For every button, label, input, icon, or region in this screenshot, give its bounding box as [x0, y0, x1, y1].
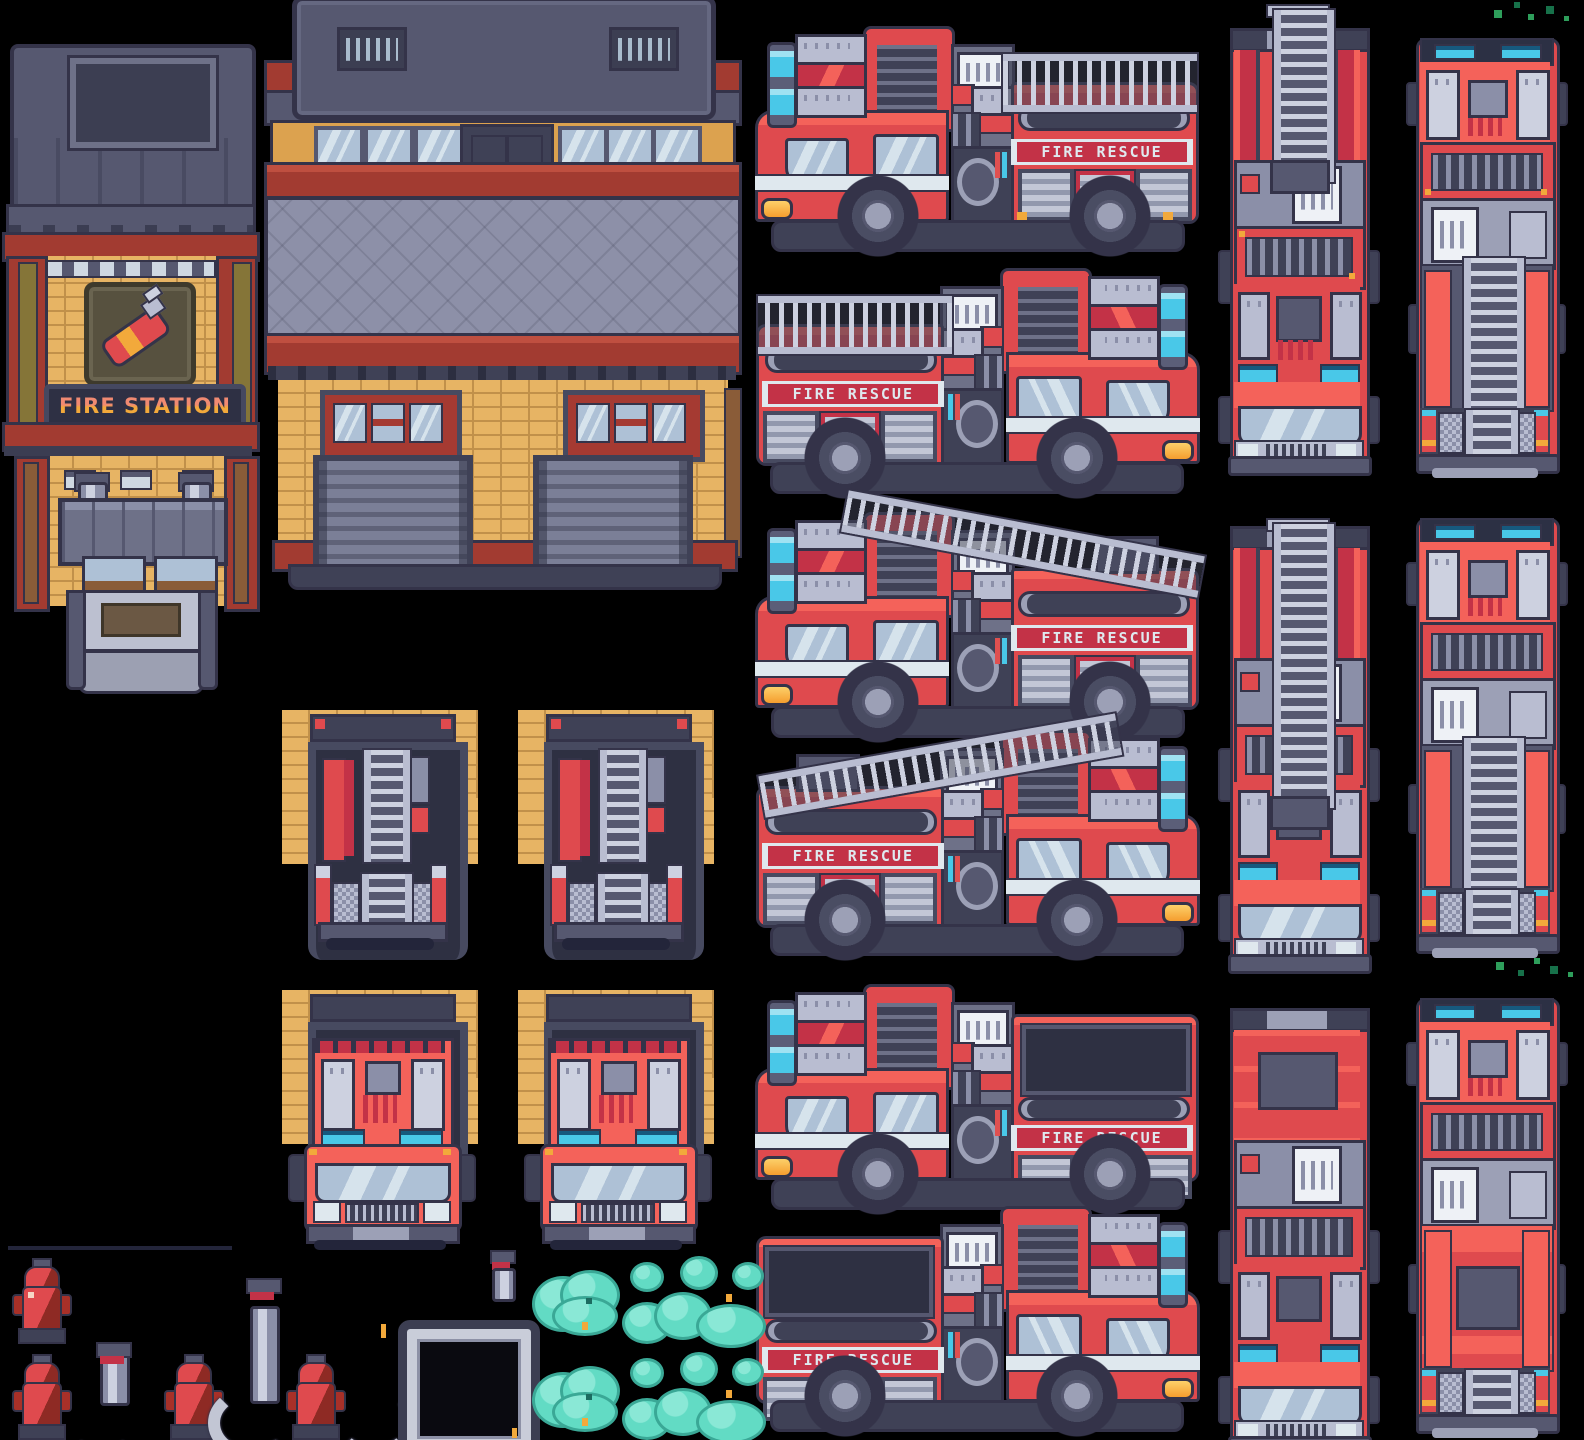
aerial-ladder-top: [1274, 524, 1334, 808]
pump-controls: [948, 856, 960, 882]
vent-slats: [1431, 633, 1543, 671]
speck: [1514, 2, 1520, 8]
speck: [1496, 962, 1504, 970]
roof-ribs: [363, 1095, 397, 1123]
rear-wheel: [803, 1354, 887, 1438]
main-roof: [264, 196, 742, 344]
pump-tool: [942, 356, 976, 376]
crew-section: [1234, 1264, 1360, 1348]
splash-dot: [586, 1394, 592, 1400]
ladder-bed: [1420, 264, 1554, 412]
amber-tick: [582, 1322, 588, 1330]
window-pane: [333, 403, 367, 443]
cab-roof: [1420, 1022, 1550, 1102]
rear-light-column: [1534, 410, 1548, 452]
hose-coil: [957, 644, 999, 692]
outrigger-right: [1522, 1230, 1550, 1368]
corner-dot: [1541, 189, 1547, 195]
fire-station-garage-building: [264, 0, 742, 592]
pump-tool: [942, 818, 976, 838]
stowed-ladder: [1003, 54, 1197, 112]
doorway-lintel: [546, 994, 692, 1022]
grille: [581, 1203, 655, 1223]
splash-blob: [552, 1392, 618, 1432]
cab-roof-emerging: [548, 1038, 690, 1154]
splash-blob: [680, 1256, 718, 1290]
roof-notch-bar: [315, 1041, 445, 1053]
fire-extinguisher-icon: [94, 296, 176, 370]
amber-tick: [726, 1390, 732, 1398]
cab-equipment-box: [1088, 1266, 1160, 1298]
pump-tool: [979, 1072, 1013, 1092]
cab-equipment-box: [1088, 328, 1160, 360]
lintel-peg: [441, 719, 451, 729]
platform-beacon: [1240, 174, 1260, 194]
stowed-ladder: [758, 296, 952, 354]
fire-hydrant: [12, 1258, 68, 1342]
rear-ladder: [600, 750, 646, 862]
hose-coil: [956, 400, 998, 448]
crew-hatch: [1276, 296, 1322, 342]
hose-coil: [956, 862, 998, 910]
splash-blob: [680, 1352, 718, 1386]
lightbar-glass: [1434, 44, 1476, 60]
rear-wheel: [803, 416, 887, 500]
window-pane: [409, 403, 443, 443]
hose-reel-bar: [1018, 591, 1190, 617]
vent-compartment: [1234, 1206, 1366, 1270]
rear-step-ladder: [362, 874, 412, 924]
plain-rear-deck: [1420, 1224, 1554, 1372]
pump-controls: [948, 1332, 960, 1358]
truck-top-plain-facing-up: [1406, 994, 1564, 1440]
speck: [1494, 10, 1502, 18]
grille: [1266, 444, 1328, 456]
roof-panel: [411, 1059, 445, 1131]
lintel-peg: [315, 719, 325, 729]
crew-ribs: [1278, 340, 1314, 360]
livery-text: FIRE RESCUE: [1041, 629, 1162, 647]
cab-band: [1234, 1362, 1360, 1388]
rear-column-left: [322, 758, 346, 862]
corner-dot: [545, 1149, 553, 1155]
cab-equipment-box: [1088, 790, 1160, 822]
deck-hatch-panel: [1456, 1266, 1520, 1330]
tower-dentils: [46, 260, 216, 278]
water-splash-cluster: [622, 1388, 762, 1438]
grille: [345, 1203, 419, 1223]
headlight-left: [313, 1201, 341, 1223]
lightbar-glass: [1434, 524, 1476, 540]
rear-light-column: [666, 864, 684, 926]
headlight-left: [1238, 444, 1258, 456]
lintel-peg: [677, 719, 687, 729]
rear-step-ladder: [1466, 890, 1518, 934]
deck-hatch-panel: [1258, 1052, 1338, 1110]
doorway-brick-left: [282, 1078, 308, 1144]
ladder-truck-side-right: FIRE RESCUE: [755, 268, 1200, 498]
headlight: [1162, 1378, 1194, 1400]
crew-door-panel: [1330, 1272, 1362, 1340]
platform-panel: [1509, 211, 1547, 259]
ladder-bed: [1420, 744, 1554, 892]
headlight: [1162, 440, 1194, 462]
floor-shadow: [314, 1240, 446, 1250]
hose-standpipe-tall: [250, 1306, 280, 1404]
cab-lightbar: [767, 1000, 797, 1086]
doorway-truck-front: [518, 986, 714, 1252]
truck-top-plain-facing-down: [1218, 990, 1376, 1440]
vent-slats: [1245, 1217, 1353, 1257]
rear-light-column: [1534, 890, 1548, 932]
ladder-truck-top-extended-facing-down: [1218, 10, 1376, 476]
nozzle-band: [250, 1292, 274, 1300]
hydrant-highlight: [28, 1292, 34, 1298]
roof-panel: [1516, 70, 1550, 140]
front-wheel: [1035, 1354, 1119, 1438]
roof-panel: [1516, 550, 1550, 620]
pump-controls: [995, 1110, 1007, 1136]
crew-door-panel: [1330, 790, 1362, 858]
headlight: [761, 1156, 793, 1178]
rear-column-thin: [580, 760, 590, 856]
roof-hatch: [1468, 560, 1508, 598]
platform-panel: [1509, 691, 1547, 739]
lightbar-glass: [1500, 524, 1542, 540]
truck-side-left-open-bed: FIRE RESCUE: [755, 984, 1200, 1214]
crew-door-panel: [1238, 790, 1270, 858]
cab-lightbar: [767, 42, 797, 128]
rear-light-column: [1534, 1370, 1548, 1412]
hose-nozzle: [490, 1250, 516, 1300]
compartment-shutter: [1018, 655, 1074, 707]
splash-blob: [696, 1400, 766, 1440]
headlight-right: [1336, 942, 1356, 954]
cab-band: [1234, 382, 1360, 408]
lower-post-left: [23, 462, 39, 604]
rear-step-ladder: [1466, 410, 1518, 454]
vent-slats: [1431, 1113, 1543, 1151]
pump-hose-slots: [951, 112, 981, 148]
lower-post-right: [233, 462, 249, 604]
rear-light-column: [550, 864, 568, 926]
pump-tool: [979, 114, 1013, 134]
aerial-ladder-top: [1464, 258, 1524, 416]
vent-slats: [1245, 237, 1353, 277]
platform-panel: [1509, 1171, 1547, 1219]
roof-panel: [1426, 70, 1460, 140]
hose-coil: [957, 158, 999, 206]
water-splash-trio: [630, 1256, 760, 1288]
window-pane: [652, 403, 686, 443]
rear-ladder: [364, 750, 410, 862]
cab-front-emerging: [304, 1144, 462, 1232]
ladder-truck-top-extended-facing-up: [1406, 34, 1564, 482]
splash-blob: [732, 1358, 764, 1386]
rear-step-section: [1420, 888, 1550, 938]
doorway-truck-rear: [518, 706, 714, 958]
compartment-shutter: [881, 411, 937, 463]
headlight: [1162, 902, 1194, 924]
lightbar-glass: [1500, 44, 1542, 60]
fire-station-tower: FIRE STATION: [6, 42, 262, 694]
roof-panel: [647, 1059, 681, 1131]
vent-compartment: [1234, 226, 1366, 290]
windshield-top: [551, 1163, 687, 1203]
plain-deck: [1234, 1030, 1360, 1140]
livery-stripe: FIRE RESCUE: [762, 381, 944, 407]
aerial-ladder-top: [1464, 738, 1524, 896]
floor-shadow: [562, 938, 670, 950]
pump-controls: [995, 638, 1007, 664]
corner-dot: [1425, 189, 1431, 195]
rear-step-section: [1420, 408, 1550, 458]
crew-door-panel: [1330, 292, 1362, 360]
cab-roof-emerging: [312, 1038, 454, 1154]
garage-window: [563, 390, 705, 462]
outrigger-left: [1424, 270, 1452, 408]
roof-panel: [1516, 1030, 1550, 1100]
tower-post-left: [18, 262, 38, 426]
front-wheel: [1035, 878, 1119, 962]
hydrant-base: [18, 1328, 66, 1344]
water-splash-big: [532, 1270, 618, 1334]
vent-compartment: [1420, 622, 1556, 684]
water-splash-cluster: [622, 1292, 762, 1342]
crew-section: [1234, 284, 1360, 368]
cab-roof: [1420, 62, 1550, 142]
cab-equipment-box: [795, 1044, 867, 1076]
pump-module: [942, 1206, 1006, 1402]
checker-plate: [332, 882, 360, 924]
pump-hose-slots: [951, 1070, 981, 1106]
ladder-truck-side-left: FIRE RESCUE: [755, 26, 1200, 256]
rear-light-column: [1422, 410, 1436, 452]
front-bumper: [1228, 954, 1372, 974]
doorway-brick-left: [518, 1078, 544, 1144]
walkway-rail-left: [66, 590, 86, 690]
window-pane: [576, 403, 610, 443]
splash-dot: [586, 1298, 592, 1304]
truck-side-right-open-bed: FIRE RESCUE: [755, 1206, 1200, 1436]
cab-equipment-box: [795, 572, 867, 604]
livery-stripe: FIRE RESCUE: [762, 843, 944, 869]
headlight-right: [1336, 1424, 1356, 1436]
livery-text: FIRE RESCUE: [1041, 143, 1162, 161]
garage-roller-door: [313, 455, 473, 579]
door-mat: [101, 603, 181, 637]
speck: [1550, 966, 1558, 974]
lightbar-glass: [1434, 1004, 1476, 1020]
outrigger-left: [1424, 1230, 1452, 1368]
headlight-left: [1238, 1424, 1258, 1436]
hose-coil: [956, 1338, 998, 1386]
outrigger-right: [1522, 270, 1550, 408]
pump-controls: [948, 394, 960, 420]
vent-compartment: [1420, 142, 1556, 204]
headlight-right: [1336, 444, 1356, 456]
pump-hose-slots: [974, 354, 1004, 390]
headlight-right: [423, 1201, 451, 1223]
vent-slats: [1431, 153, 1543, 191]
splash-blob: [630, 1262, 664, 1292]
garage-window: [320, 390, 462, 462]
hose-frame: [398, 1320, 540, 1440]
crew-hatch: [1276, 1276, 1322, 1322]
window-pane: [614, 403, 648, 443]
emblem-plaque: [84, 282, 196, 386]
rear-step-ladder: [598, 874, 648, 924]
doorway-brick-left: [518, 798, 544, 864]
floor-shadow: [326, 938, 434, 950]
outrigger-right: [1522, 750, 1550, 888]
splash-blob: [552, 1296, 618, 1336]
roof-panel: [1426, 1030, 1460, 1100]
platform-louver-box: [1292, 1146, 1342, 1204]
pump-tool: [942, 1294, 976, 1314]
amber-tick: [512, 1428, 517, 1438]
walkway-rail-right: [198, 590, 218, 690]
rear-column-left: [558, 758, 582, 862]
doorway-lintel: [310, 714, 456, 742]
roof-panel: [557, 1059, 591, 1131]
headlight-right: [659, 1201, 687, 1223]
outrigger-left: [1424, 750, 1452, 888]
grille: [1266, 1424, 1328, 1436]
splash-blob: [696, 1304, 766, 1348]
crew-door-panel: [1238, 1272, 1270, 1340]
rear-wheel: [1068, 1132, 1152, 1216]
roof-monitor: [292, 0, 716, 120]
grass-specks: [1494, 2, 1578, 28]
front-bumper: [1228, 1436, 1372, 1440]
doorway-truck-front: [282, 986, 478, 1252]
station-sign-text: FIRE STATION: [49, 389, 241, 423]
crew-door-panel: [1238, 292, 1270, 360]
cab-lightbar: [1158, 746, 1188, 832]
splash-blob: [630, 1358, 664, 1388]
roof-ribs: [1468, 1078, 1502, 1096]
livery-text: FIRE RESCUE: [792, 385, 913, 403]
checker-plate: [1438, 1372, 1464, 1414]
corner-dot: [309, 1149, 317, 1155]
speck: [1546, 6, 1554, 14]
floor-shadow: [550, 1240, 682, 1250]
doorway-lintel: [310, 994, 456, 1022]
rear-light-column: [1422, 890, 1436, 932]
platform-louver-box: [1431, 687, 1479, 743]
lintel-peg: [551, 719, 561, 729]
roof-panel: [1426, 550, 1460, 620]
ladder-pedestal: [1270, 796, 1330, 830]
amber-tick: [582, 1418, 588, 1426]
corner-dot: [1239, 231, 1245, 237]
wall-post-right: [724, 388, 742, 558]
roof-hatch: [601, 1061, 637, 1095]
splash-blob: [732, 1262, 764, 1290]
hose-coil: [957, 1116, 999, 1164]
checker-plate: [1438, 412, 1464, 454]
cab-lightbar: [767, 528, 797, 614]
corner-dot: [443, 1149, 451, 1155]
headlight: [761, 198, 793, 220]
roof-vent-grille: [609, 27, 679, 71]
separator-line: [8, 1246, 232, 1250]
ground-shadow: [1432, 1428, 1538, 1438]
entrance-walkway: [78, 590, 204, 694]
rear-bumper: [1230, 1008, 1370, 1032]
roof-panel: [321, 1059, 355, 1131]
extinguisher-body: [99, 305, 173, 370]
doorway-lintel: [546, 714, 692, 742]
rear-wheel: [1068, 174, 1152, 258]
roof-ribs: [1468, 598, 1502, 616]
cab-front-emerging: [540, 1144, 698, 1232]
hose-reel-bar: [1018, 1097, 1190, 1121]
checker-plate: [568, 882, 596, 924]
window-pane: [371, 403, 405, 443]
rear-column-thin: [344, 760, 354, 856]
garage-roller-door: [533, 455, 693, 579]
water-splash-big: [532, 1366, 618, 1430]
corner-dot: [1349, 273, 1355, 279]
pump-tool: [979, 600, 1013, 620]
sprite-sheet: FIRE STATION: [0, 0, 1584, 1440]
doorway-brick-left: [282, 798, 308, 864]
cab-roof: [1420, 542, 1550, 622]
cab-lightbar: [1158, 284, 1188, 370]
rear-step-ladder: [1466, 1370, 1518, 1414]
marker-light: [1017, 212, 1027, 220]
roof-ribs: [599, 1095, 633, 1123]
open-bed: [765, 1247, 933, 1317]
amber-tick: [381, 1324, 386, 1338]
roof-notch-bar: [551, 1041, 681, 1053]
cab-lightbar: [1158, 1222, 1188, 1308]
tower-skylight: [70, 58, 216, 148]
roof-hatch: [1468, 1040, 1508, 1078]
windshield-top: [315, 1163, 451, 1203]
water-splash-trio: [630, 1352, 760, 1384]
platform-beacon: [1240, 1154, 1260, 1174]
platform-louver-box: [1431, 1167, 1479, 1223]
speck: [1564, 16, 1569, 21]
mid-platform: [1420, 1158, 1556, 1230]
ladder-truck-top-stowed-facing-down: [1218, 508, 1376, 974]
corner-dot: [679, 1149, 687, 1155]
hose-reel-bar: [765, 1319, 937, 1343]
grille: [1266, 942, 1328, 954]
rear-wheel: [803, 878, 887, 962]
marker-light: [1163, 212, 1173, 220]
headlight-left: [549, 1201, 577, 1223]
hydrant-base: [18, 1424, 66, 1440]
front-wheel: [836, 1132, 920, 1216]
livery-stripe: FIRE RESCUE: [1011, 625, 1193, 651]
pump-hose-slots: [951, 598, 981, 634]
vent-compartment: [1420, 1102, 1556, 1164]
nozzle-band: [100, 1356, 124, 1364]
rear-light-column: [430, 864, 448, 926]
doorway-truck-rear: [282, 706, 478, 958]
roof-vent-grille: [337, 27, 407, 71]
speck: [1568, 972, 1573, 977]
platform-beacon: [1240, 672, 1260, 692]
headlight-left: [1238, 942, 1258, 954]
rear-light-column: [314, 864, 332, 926]
livery-stripe: FIRE RESCUE: [1011, 139, 1193, 165]
ladder-pedestal: [1270, 160, 1330, 194]
